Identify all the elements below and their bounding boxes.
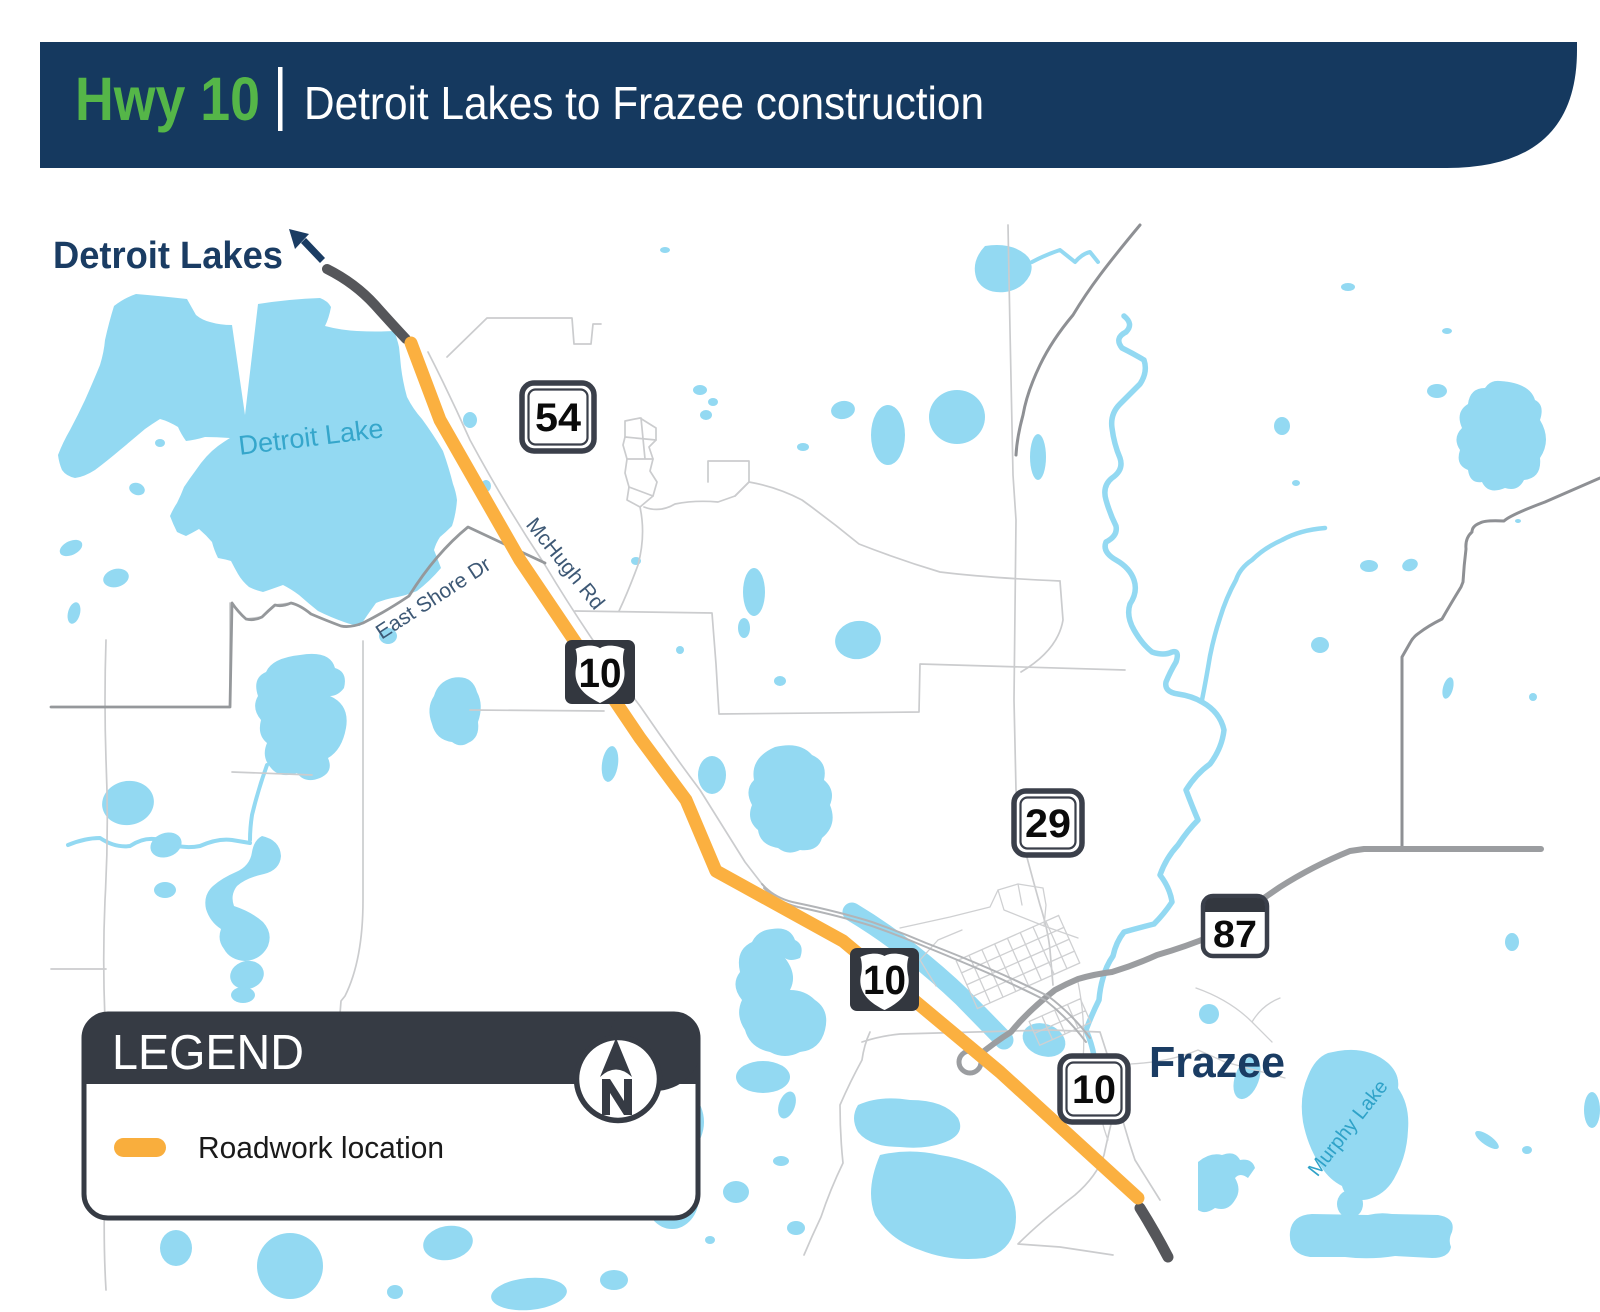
svg-text:Hwy 10: Hwy 10 xyxy=(75,65,260,133)
svg-text:Frazee: Frazee xyxy=(1149,1038,1285,1087)
svg-text:54: 54 xyxy=(535,396,582,440)
svg-text:Roadwork location: Roadwork location xyxy=(198,1130,444,1165)
svg-text:10: 10 xyxy=(863,957,906,1003)
svg-text:87: 87 xyxy=(1213,914,1257,956)
svg-text:Detroit Lakes: Detroit Lakes xyxy=(53,235,283,277)
svg-text:10: 10 xyxy=(579,650,622,696)
svg-text:10: 10 xyxy=(1072,1068,1116,1112)
svg-text:Detroit Lakes to Frazee constr: Detroit Lakes to Frazee construction xyxy=(304,77,984,129)
svg-text:29: 29 xyxy=(1025,802,1071,846)
svg-text:LEGEND: LEGEND xyxy=(112,1026,304,1080)
